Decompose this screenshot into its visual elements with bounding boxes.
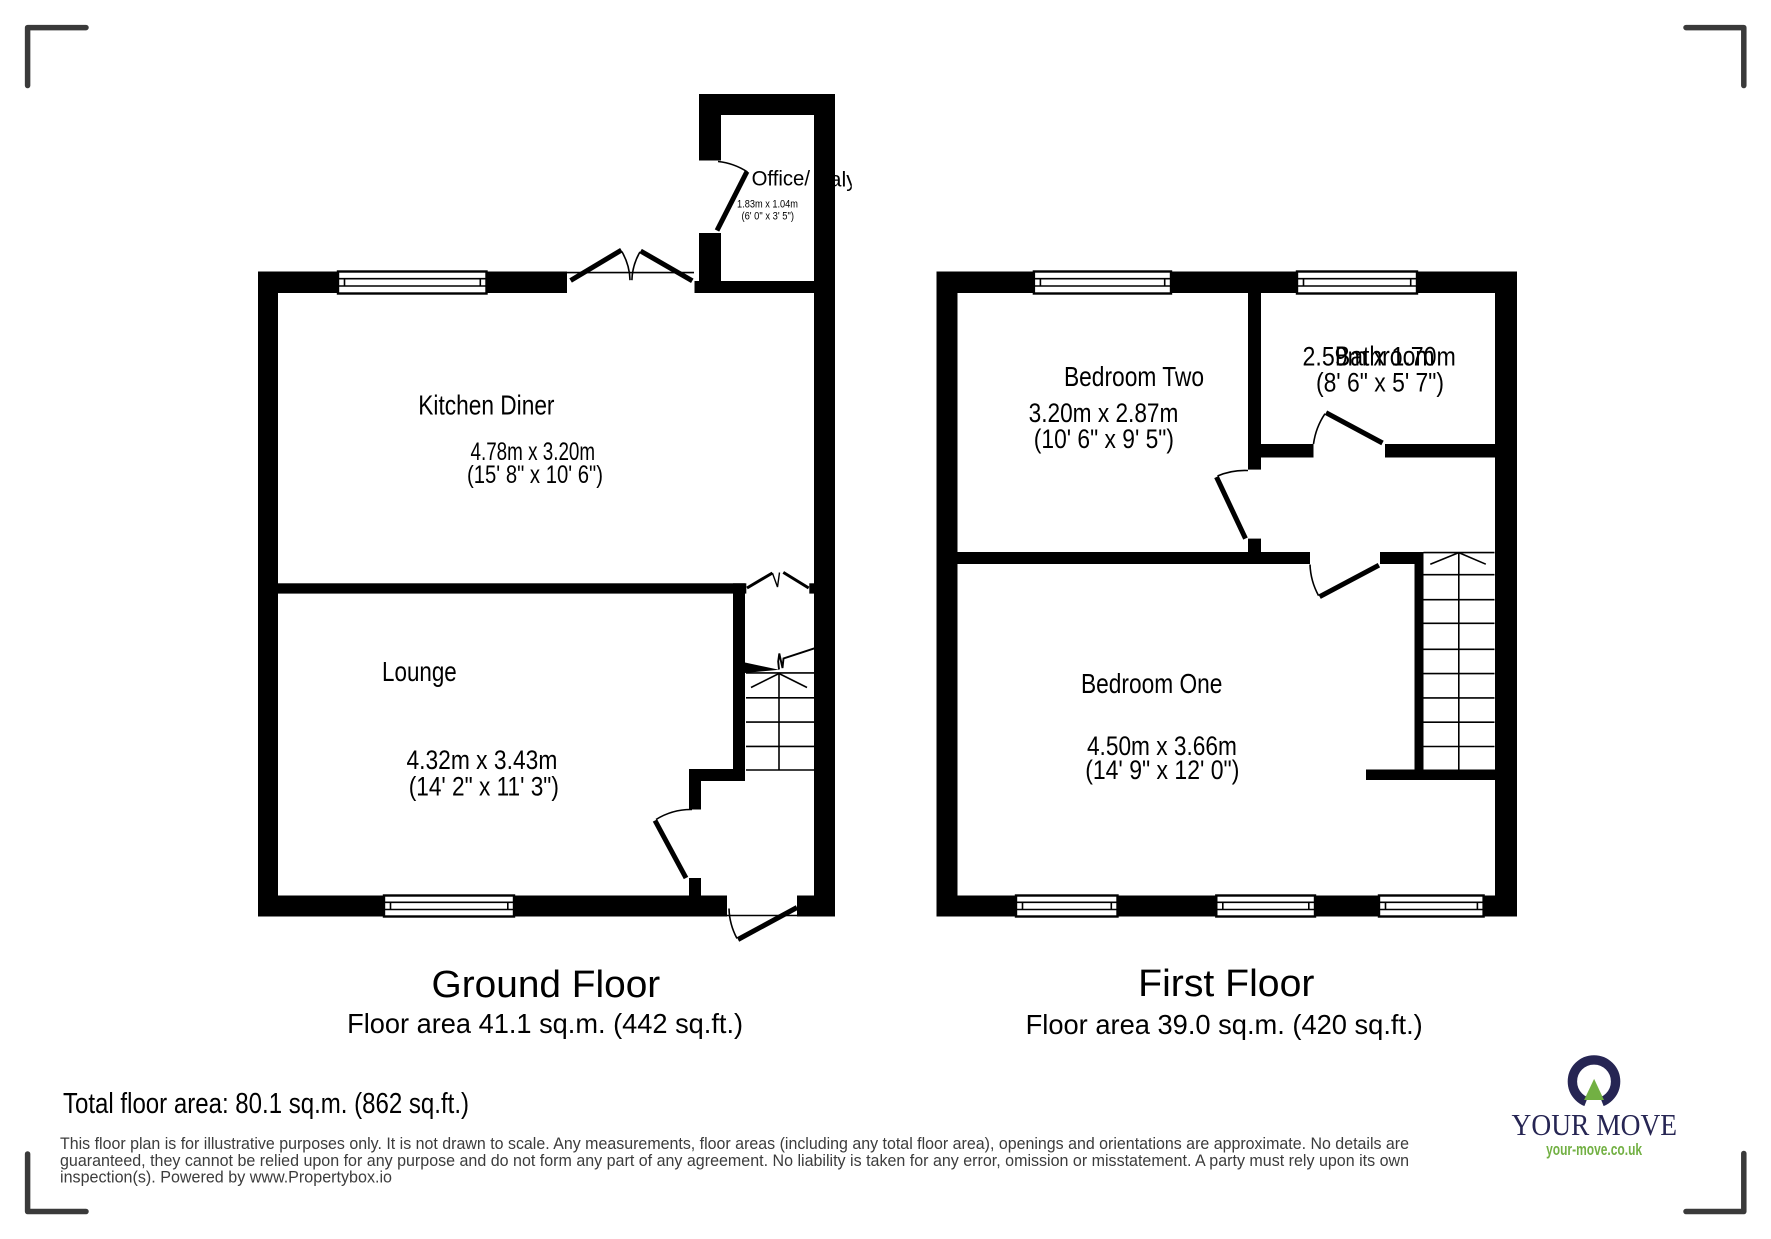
svg-text:Bedroom Two: Bedroom Two [1064, 361, 1204, 392]
svg-text:Floor area 39.0 sq.m. (420 sq.: Floor area 39.0 sq.m. (420 sq.ft.) [1026, 1009, 1423, 1040]
svg-text:1.83m x 1.04m: 1.83m x 1.04m [737, 199, 798, 211]
svg-text:(14' 9" x 12' 0"): (14' 9" x 12' 0") [1085, 755, 1239, 785]
svg-text:Total floor area: 80.1 sq.m. (: Total floor area: 80.1 sq.m. (862 sq.ft.… [63, 1088, 469, 1120]
svg-text:Lounge: Lounge [382, 656, 457, 687]
svg-text:(8' 6" x 5' 7"): (8' 6" x 5' 7") [1316, 367, 1444, 397]
svg-text:Ground Floor: Ground Floor [432, 964, 661, 1006]
svg-text:Floor area 41.1 sq.m. (442 sq.: Floor area 41.1 sq.m. (442 sq.ft.) [347, 1008, 743, 1039]
svg-text:(6' 0" x 3' 5"): (6' 0" x 3' 5") [741, 211, 794, 223]
svg-text:Office/: Office/ [752, 166, 810, 190]
svg-text:YOUR MOVE: YOUR MOVE [1512, 1107, 1678, 1142]
svg-text:Bedroom One: Bedroom One [1081, 668, 1222, 699]
svg-text:(15' 8" x 10' 6"): (15' 8" x 10' 6") [467, 461, 603, 489]
svg-text:(14' 2" x 11' 3"): (14' 2" x 11' 3") [409, 772, 559, 802]
svg-text:inspection(s). Powered by www.: inspection(s). Powered by www.Propertybo… [60, 1168, 392, 1187]
svg-text:First Floor: First Floor [1138, 963, 1315, 1005]
svg-text:(10' 6" x 9' 5"): (10' 6" x 9' 5") [1034, 424, 1174, 454]
svg-text:4.32m x 3.43m: 4.32m x 3.43m [406, 745, 557, 775]
svg-text:your-move.co.uk: your-move.co.uk [1546, 1141, 1643, 1159]
svg-text:Kitchen Diner: Kitchen Diner [418, 390, 554, 421]
